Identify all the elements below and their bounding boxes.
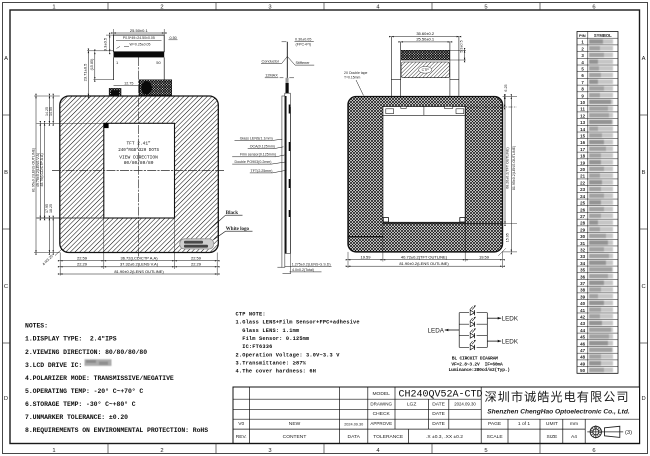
svg-text:48.76(LCD/CTP A.A): 48.76(LCD/CTP A.A)	[40, 153, 44, 186]
svg-text:11: 11	[580, 107, 585, 112]
svg-text:36: 36	[580, 274, 585, 279]
svg-text:50: 50	[580, 368, 585, 373]
svg-text:BL CIRCUIT DIAGRAM: BL CIRCUIT DIAGRAM	[452, 355, 498, 361]
svg-text:23: 23	[580, 187, 585, 192]
svg-text:18: 18	[580, 154, 585, 159]
svg-text:5: 5	[484, 5, 487, 11]
svg-text:22.29: 22.29	[77, 262, 88, 267]
svg-text:SIZE: SIZE	[546, 434, 558, 440]
svg-text:5.OPERATING TEMP: -20° C~+70°: 5.OPERATING TEMP: -20° C~+70° C	[25, 387, 143, 395]
svg-text:.X ±0.3, .XX ±0.2: .X ±0.3, .XX ±0.2	[426, 434, 463, 440]
svg-text:B: B	[4, 170, 8, 176]
svg-text:240*RGB*320 DOTS: 240*RGB*320 DOTS	[118, 148, 159, 153]
svg-text:1 of 1: 1 of 1	[518, 421, 531, 427]
svg-text:25: 25	[580, 201, 585, 206]
svg-text:2024.09.30: 2024.09.30	[344, 422, 363, 426]
svg-text:DATE: DATE	[432, 411, 445, 417]
svg-text:26: 26	[580, 207, 585, 212]
svg-text:DATE: DATE	[432, 401, 445, 407]
svg-text:4.0±0.2(Total): 4.0±0.2(Total)	[292, 268, 314, 272]
svg-text:(3): (3)	[625, 430, 632, 436]
svg-text:TFT 2.41″: TFT 2.41″	[126, 141, 151, 147]
svg-text:深圳市诚皓光电有限公司: 深圳市诚皓光电有限公司	[484, 389, 629, 404]
svg-text:T=0.15mm: T=0.15mm	[344, 75, 360, 79]
svg-text:15: 15	[580, 134, 585, 139]
svg-text:45: 45	[580, 335, 585, 340]
svg-text:22.59: 22.59	[77, 256, 88, 261]
svg-text:3.Transmittance: ≥87%: 3.Transmittance: ≥87%	[236, 361, 307, 367]
svg-text:27: 27	[580, 214, 585, 219]
svg-text:81.95±0.2(LENS OUTLINE): 81.95±0.2(LENS OUTLINE)	[31, 148, 35, 192]
svg-text:NEW: NEW	[289, 421, 301, 427]
svg-text:19: 19	[580, 160, 585, 165]
svg-text:31: 31	[580, 241, 585, 246]
svg-text:19.59: 19.59	[479, 254, 490, 259]
svg-text:39: 39	[580, 294, 585, 299]
svg-text:29: 29	[580, 227, 585, 232]
svg-text:LGZ: LGZ	[407, 401, 417, 407]
svg-text:Film sensor(0.125mm): Film sensor(0.125mm)	[240, 153, 276, 157]
svg-text:D: D	[4, 396, 8, 402]
svg-text:12: 12	[580, 113, 585, 118]
svg-text:LEDK: LEDK	[502, 316, 519, 323]
svg-text:APPROVE: APPROVE	[370, 421, 392, 426]
svg-text:22.59: 22.59	[191, 256, 202, 261]
svg-text:6: 6	[592, 5, 595, 11]
svg-text:W=0.25±0.05: W=0.25±0.05	[130, 42, 151, 46]
svg-text:PIN: PIN	[579, 33, 586, 38]
svg-text:41: 41	[580, 308, 585, 313]
svg-text:SCALE: SCALE	[487, 434, 504, 440]
svg-text:47: 47	[580, 348, 585, 353]
svg-text:VF=2.8~3.2V IF=60mA: VF=2.8~3.2V IF=60mA	[451, 361, 503, 367]
svg-text:14: 14	[580, 127, 585, 132]
svg-text:2.Operation Voltage: 3.0V~3.3: 2.Operation Voltage: 3.0V~3.3 V	[236, 352, 341, 358]
svg-text:44: 44	[580, 328, 585, 333]
svg-text:SYMBOL: SYMBOL	[594, 33, 612, 38]
svg-text:P0.5*49=24.50±0.05: P0.5*49=24.50±0.05	[123, 36, 155, 40]
svg-text:IC:FT6336: IC:FT6336	[236, 344, 273, 350]
svg-text:42: 42	[580, 314, 585, 319]
svg-text:VIEW DIRECTION: VIEW DIRECTION	[119, 155, 158, 161]
svg-text:35: 35	[580, 268, 585, 273]
svg-text:23.71±0.5: 23.71±0.5	[82, 63, 87, 82]
svg-text:0.30±0.05: 0.30±0.05	[295, 38, 311, 42]
svg-text:C: C	[642, 284, 646, 290]
svg-text:A: A	[642, 56, 646, 62]
svg-text:16: 16	[580, 140, 585, 145]
svg-text:Double PO903(0.2mm): Double PO903(0.2mm)	[235, 160, 272, 164]
svg-text:5: 5	[484, 448, 487, 454]
svg-text:0.50: 0.50	[170, 36, 177, 40]
svg-text:40: 40	[580, 301, 585, 306]
svg-text:V0: V0	[238, 421, 244, 427]
svg-text:CH240QV52A-CTD: CH240QV52A-CTD	[399, 389, 483, 400]
svg-text:Shenzhen ChengHao Optoelectron: Shenzhen ChengHao Optoelectronic Co., Lt…	[487, 409, 630, 416]
svg-text:28: 28	[580, 221, 585, 226]
svg-text:1.Glass LENS+Film Sensor+FPC+a: 1.Glass LENS+Film Sensor+FPC+adhesive	[236, 320, 360, 326]
svg-text:33: 33	[580, 254, 585, 259]
svg-text:2X Double tape: 2X Double tape	[344, 71, 367, 75]
svg-text:1: 1	[52, 448, 55, 454]
svg-text:REV.: REV.	[236, 434, 247, 440]
svg-text:68.26±0.2(TFT OUTLINE): 68.26±0.2(TFT OUTLINE)	[506, 147, 510, 188]
svg-text:CHECK: CHECK	[373, 411, 391, 417]
svg-text:mm: mm	[570, 422, 578, 427]
svg-text:49: 49	[580, 361, 585, 366]
svg-text:D: D	[642, 396, 646, 402]
svg-text:15.05: 15.05	[506, 233, 510, 242]
svg-text:20: 20	[580, 167, 585, 172]
svg-text:18.25: 18.25	[49, 204, 53, 213]
svg-text:TOLERANCE: TOLERANCE	[373, 434, 404, 440]
svg-text:1.DISPLAY TYPE: 2.4″IPS: 1.DISPLAY TYPE: 2.4″IPS	[25, 336, 117, 343]
svg-text:Luminance:280cd/m2(Typ.): Luminance:280cd/m2(Typ.)	[449, 367, 510, 373]
svg-text:6.STORAGE TEMP: -30° C~+80° C: 6.STORAGE TEMP: -30° C~+80° C	[25, 400, 136, 408]
svg-text:(FPC+PI): (FPC+PI)	[296, 42, 311, 46]
svg-text:4.The cover hardness: 6H: 4.The cover hardness: 6H	[236, 369, 317, 375]
svg-text:37: 37	[580, 281, 585, 286]
svg-text:8.REQUIREMENTS ON ENVIRONMENTA: 8.REQUIREMENTS ON ENVIRONMENTAL PROTECTI…	[25, 427, 208, 434]
svg-text:A4: A4	[571, 434, 577, 440]
svg-text:CTP NOTE:: CTP NOTE:	[236, 311, 266, 317]
svg-text:UMIT: UMIT	[546, 421, 558, 427]
svg-text:LEDA: LEDA	[428, 327, 445, 334]
svg-text:CONTENT: CONTENT	[283, 434, 307, 440]
svg-text:DRAWING: DRAWING	[370, 401, 392, 406]
svg-text:2: 2	[160, 5, 163, 11]
svg-text:MODEL: MODEL	[372, 391, 390, 397]
svg-text:19.59: 19.59	[360, 254, 371, 259]
svg-text:TFT(2.25mm): TFT(2.25mm)	[251, 169, 273, 173]
svg-text:12.75: 12.75	[124, 81, 133, 85]
svg-text:2.VIEWING DIRECTION: 80/80/80/: 2.VIEWING DIRECTION: 80/80/80/80	[25, 349, 147, 356]
svg-text:6: 6	[592, 448, 595, 454]
svg-text:21: 21	[580, 174, 585, 179]
svg-text:LEDK: LEDK	[502, 338, 519, 345]
svg-text:32: 32	[580, 247, 585, 252]
svg-text:37.32±0.2(LENS V.A): 37.32±0.2(LENS V.A)	[120, 262, 159, 267]
svg-text:25.50±0.1: 25.50±0.1	[130, 28, 149, 33]
svg-text:40.72±0.2(TFT OUTLINE): 40.72±0.2(TFT OUTLINE)	[401, 254, 448, 259]
svg-text:48: 48	[580, 355, 585, 360]
svg-text:10: 10	[580, 100, 585, 105]
svg-text:Stiffener: Stiffener	[296, 61, 311, 65]
svg-text:3: 3	[268, 5, 271, 11]
svg-text:4.POLARIZER MODE: TRANSMISSIVE: 4.POLARIZER MODE: TRANSMISSIVE/NEGATIVE	[25, 375, 174, 382]
svg-text:22.29: 22.29	[191, 262, 202, 267]
svg-text:DATA: DATA	[348, 434, 361, 440]
svg-text:Glass LENS(1.1mm): Glass LENS(1.1mm)	[240, 136, 273, 140]
svg-text:6.25: 6.25	[504, 84, 508, 91]
svg-text:17: 17	[580, 147, 585, 152]
svg-text:12MAX: 12MAX	[265, 74, 278, 78]
svg-text:1: 1	[52, 5, 55, 11]
svg-text:7.UNMARKER TOLERANCE: ±0.20: 7.UNMARKER TOLERANCE: ±0.20	[25, 414, 128, 421]
svg-text:81.90±0.2(LENS OUTLINE): 81.90±0.2(LENS OUTLINE)	[399, 261, 449, 266]
svg-text:30: 30	[580, 234, 585, 239]
svg-text:24: 24	[580, 194, 585, 199]
svg-text:50: 50	[156, 60, 161, 65]
svg-text:DATE: DATE	[432, 421, 445, 427]
svg-text:25.50±0.1: 25.50±0.1	[416, 37, 435, 42]
svg-text:3: 3	[268, 448, 271, 454]
svg-text:81.90±0.2(LENS OUTLINE): 81.90±0.2(LENS OUTLINE)	[114, 269, 164, 274]
svg-text:46: 46	[580, 341, 585, 346]
svg-text:22: 22	[580, 180, 585, 185]
svg-text:81.95±0.2(LENS OUTLINE): 81.95±0.2(LENS OUTLINE)	[512, 146, 516, 190]
svg-text:CTP: CTP	[422, 68, 430, 72]
svg-text:2: 2	[160, 448, 163, 454]
svg-text:C: C	[4, 284, 8, 290]
svg-text:A: A	[4, 56, 8, 62]
svg-text:3.LCD DRIVE IC:: 3.LCD DRIVE IC:	[25, 362, 82, 369]
svg-text:35.60±0.2: 35.60±0.2	[416, 31, 435, 36]
svg-text:14.55: 14.55	[49, 107, 53, 116]
svg-text:43: 43	[580, 321, 585, 326]
svg-text:38: 38	[580, 288, 585, 293]
svg-text:NOTES:: NOTES:	[25, 323, 48, 330]
svg-text:Glass LENS: 1.1mm: Glass LENS: 1.1mm	[236, 328, 300, 334]
svg-text:OCA(0.125mm): OCA(0.125mm)	[250, 144, 275, 148]
svg-text:2024.09.30: 2024.09.30	[454, 402, 476, 407]
svg-text:B: B	[642, 170, 646, 176]
svg-text:1.275±0.2(LENS-G.S.D): 1.275±0.2(LENS-G.S.D)	[292, 263, 331, 267]
svg-text:36.72(LCD/CTP A.A): 36.72(LCD/CTP A.A)	[120, 256, 158, 261]
svg-text:PAGE: PAGE	[488, 421, 502, 427]
svg-text:34: 34	[580, 261, 585, 266]
svg-text:5.3±0.5: 5.3±0.5	[460, 40, 464, 52]
svg-text:Conductor: Conductor	[262, 60, 280, 64]
svg-text:13: 13	[580, 120, 585, 125]
svg-text:Film Sensor: 0.125mm: Film Sensor: 0.125mm	[236, 336, 310, 342]
svg-text:(15.85): (15.85)	[90, 59, 94, 71]
svg-text:80/80/80/80: 80/80/80/80	[124, 160, 154, 166]
svg-text:3.3±0.5: 3.3±0.5	[102, 37, 107, 51]
